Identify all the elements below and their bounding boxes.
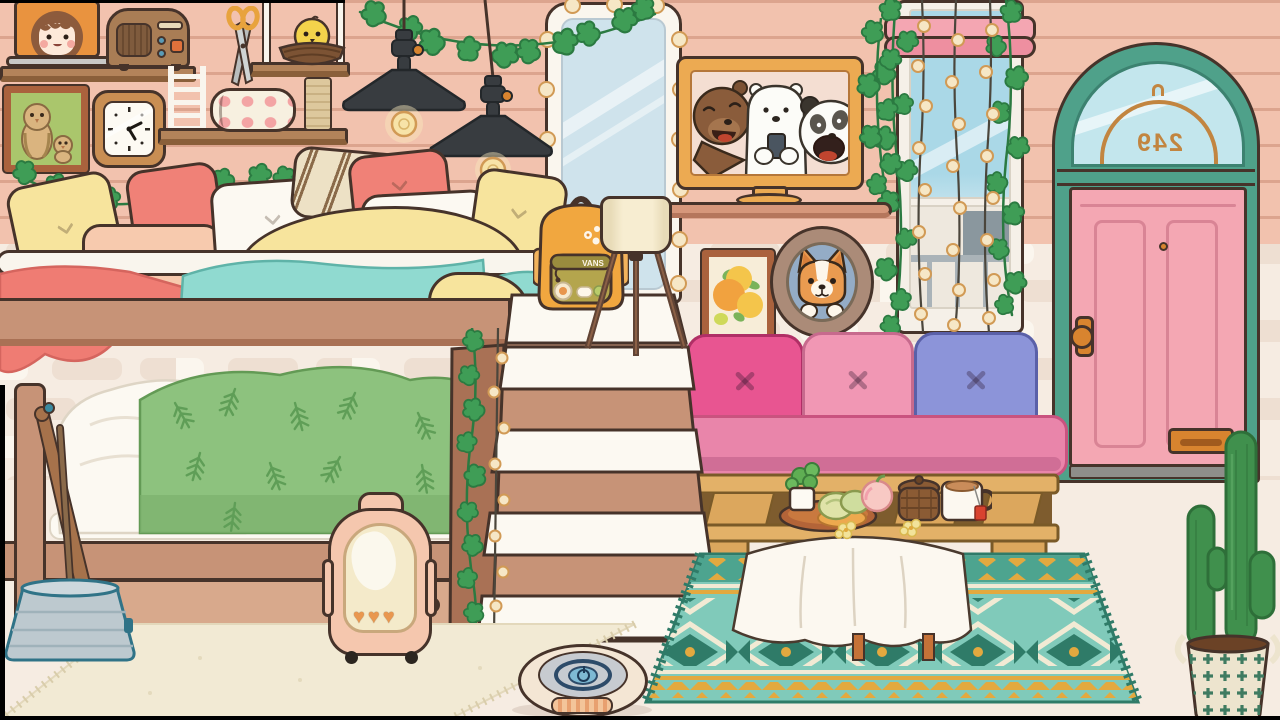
door-number: 249	[1104, 129, 1214, 158]
girl-avatar	[17, 3, 97, 55]
video-artifact-bar	[0, 716, 1280, 720]
scratching-post	[304, 77, 332, 131]
window-string-lights[interactable]	[900, 0, 1015, 335]
mirror-bulb	[671, 31, 688, 48]
door-panel-right	[1166, 220, 1218, 448]
radio-knob[interactable]	[157, 49, 166, 58]
video-artifact-bar	[0, 0, 345, 3]
radio-grille	[116, 23, 152, 57]
heart-icon: ♥	[383, 606, 395, 629]
cactus-plant[interactable]	[1166, 430, 1280, 720]
tripod-lamp-leg	[633, 254, 639, 356]
owl-art	[11, 93, 81, 165]
carrier-wheel	[345, 651, 358, 664]
window-highlight	[345, 527, 403, 594]
stairs-string-bulbs	[489, 353, 510, 636]
herb-pot	[786, 463, 819, 510]
cat-tree-pole	[262, 0, 271, 68]
robot-vacuum[interactable]	[518, 644, 648, 718]
tripod-lamp-hub	[629, 252, 643, 261]
clock-hands	[105, 103, 153, 155]
video-artifact-bar	[0, 385, 5, 720]
ladder	[168, 66, 206, 132]
bears-cartoon	[692, 72, 850, 176]
laptop[interactable]	[6, 0, 114, 70]
carrier-wheel	[405, 651, 418, 664]
tripod-lamp-shade[interactable]	[600, 196, 672, 254]
power-icon	[577, 669, 590, 682]
cushion-stitch	[846, 368, 870, 392]
door-panel-left	[1094, 220, 1146, 448]
scissors[interactable]	[220, 6, 266, 96]
transom-ornament	[1152, 84, 1164, 96]
pillow-stitch	[57, 217, 74, 234]
table-items[interactable]	[742, 456, 992, 561]
mirror-bulb	[671, 231, 688, 248]
bird-nest[interactable]	[272, 14, 350, 68]
corgi-dog	[789, 245, 855, 319]
radio[interactable]	[106, 8, 190, 68]
stairs-ivy-lights	[452, 328, 530, 643]
carrier-bubble-window: ♥♥♥	[343, 523, 417, 633]
roomba-bumper	[551, 697, 613, 714]
backpack-brand-label: VANS	[582, 259, 604, 268]
pet-carrier[interactable]: ♥♥♥	[328, 508, 432, 656]
door-crossbar	[1057, 169, 1255, 186]
pillow-stitch	[264, 209, 281, 226]
door-transom-glass: 249	[1071, 61, 1245, 167]
pencil-case-endcap	[219, 95, 229, 127]
cushion-stitch	[733, 369, 757, 393]
front-door[interactable]: 249	[1052, 42, 1260, 483]
bucket-with-brooms[interactable]	[2, 402, 142, 664]
basket	[899, 476, 939, 520]
tv-shelf	[664, 202, 892, 218]
carrier-hearts: ♥♥♥	[353, 606, 395, 629]
bears-tv[interactable]	[676, 56, 864, 190]
heart-icon: ♥	[353, 606, 365, 629]
carrier-side-flap	[425, 559, 437, 617]
pillow-stitch	[511, 203, 528, 220]
roomba-power-button[interactable]	[568, 666, 598, 685]
pillow-stitch	[391, 174, 408, 191]
ice-bear	[746, 84, 806, 176]
door-knob[interactable]	[1070, 325, 1094, 349]
panda-bear	[800, 97, 850, 163]
laptop-screen	[14, 0, 100, 58]
heart-icon: ♥	[368, 606, 380, 629]
carrier-side-flap	[322, 559, 334, 617]
tv-screen	[690, 70, 850, 176]
door-slab[interactable]	[1069, 187, 1247, 467]
door-top-groove	[1080, 204, 1236, 207]
table-flower	[835, 520, 921, 539]
door-peephole	[1159, 242, 1168, 251]
tea-mug	[942, 481, 992, 520]
mirror-bulb	[670, 275, 687, 292]
radio-knob[interactable]	[157, 36, 166, 45]
radio-foot	[119, 64, 129, 71]
laptop-base	[6, 56, 112, 67]
clock-face	[103, 101, 155, 157]
radio-button[interactable]	[170, 39, 184, 53]
cushion-stitch	[964, 368, 988, 392]
room-scene: 249	[0, 0, 1280, 720]
ivy-vine-tv-right	[845, 18, 915, 198]
radio-dial-window	[157, 21, 183, 30]
corgi-porthole[interactable]	[770, 226, 874, 338]
porthole-inner	[786, 242, 858, 322]
peach	[862, 476, 892, 511]
grizzly-bear	[694, 81, 750, 176]
